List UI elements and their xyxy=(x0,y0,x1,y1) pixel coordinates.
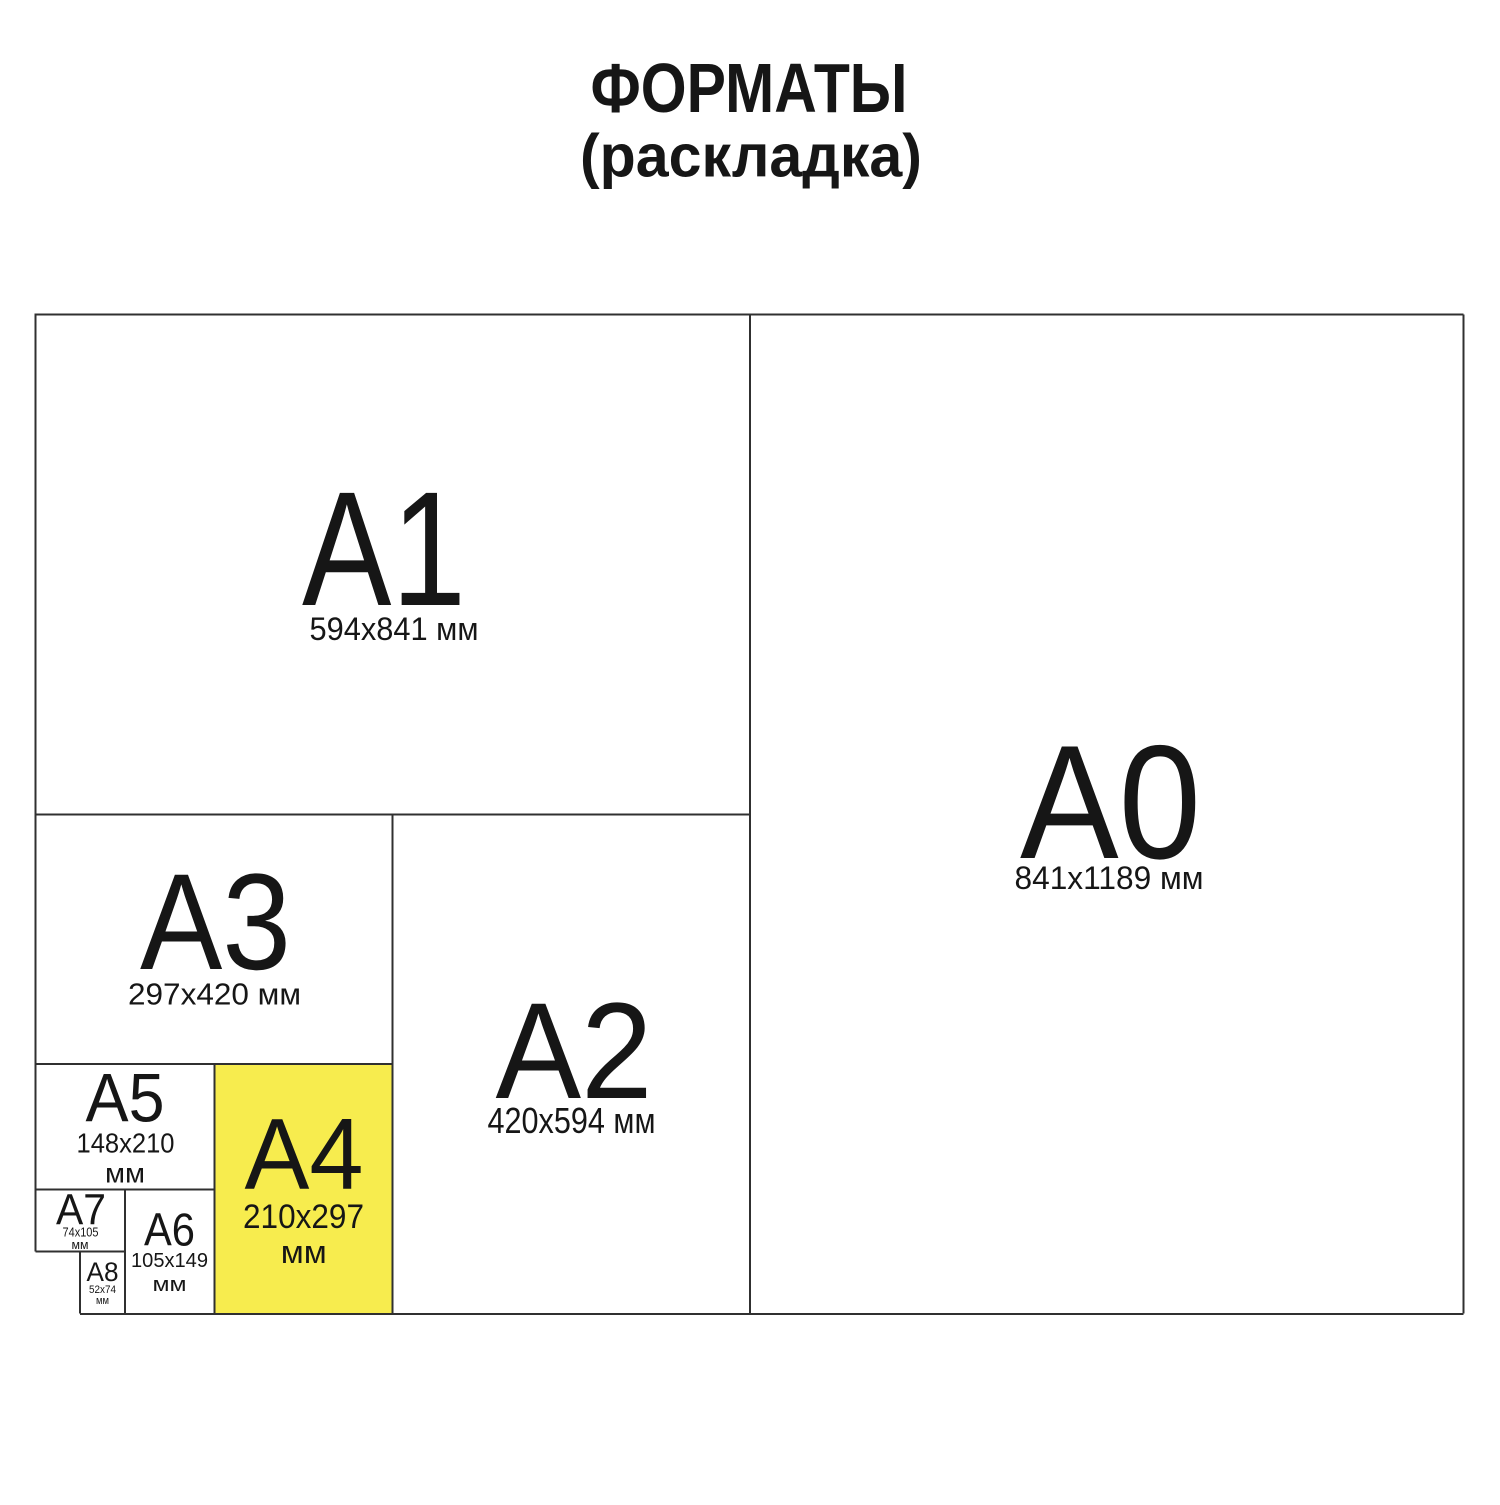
svg-text:(раскладка): (раскладка) xyxy=(580,123,922,190)
svg-text:мм: мм xyxy=(153,1274,187,1296)
svg-text:148х210: 148х210 xyxy=(77,1128,175,1159)
svg-text:297х420 мм: 297х420 мм xyxy=(128,977,301,1012)
svg-text:мм: мм xyxy=(72,1238,89,1252)
svg-text:ФОРМАТЫ: ФОРМАТЫ xyxy=(591,49,908,127)
svg-text:105х149: 105х149 xyxy=(131,1250,208,1272)
svg-text:210х297: 210х297 xyxy=(243,1198,364,1236)
svg-text:мм: мм xyxy=(281,1234,327,1270)
svg-text:А5: А5 xyxy=(86,1060,165,1137)
svg-text:420х594 мм: 420х594 мм xyxy=(488,1100,656,1141)
svg-text:мм: мм xyxy=(96,1295,109,1307)
svg-text:А4: А4 xyxy=(245,1099,364,1211)
svg-text:А6: А6 xyxy=(144,1204,195,1256)
svg-text:594х841 мм: 594х841 мм xyxy=(310,611,479,647)
svg-text:мм: мм xyxy=(105,1158,145,1189)
svg-text:841х1189 мм: 841х1189 мм xyxy=(1015,860,1204,896)
svg-text:А8: А8 xyxy=(87,1257,119,1287)
